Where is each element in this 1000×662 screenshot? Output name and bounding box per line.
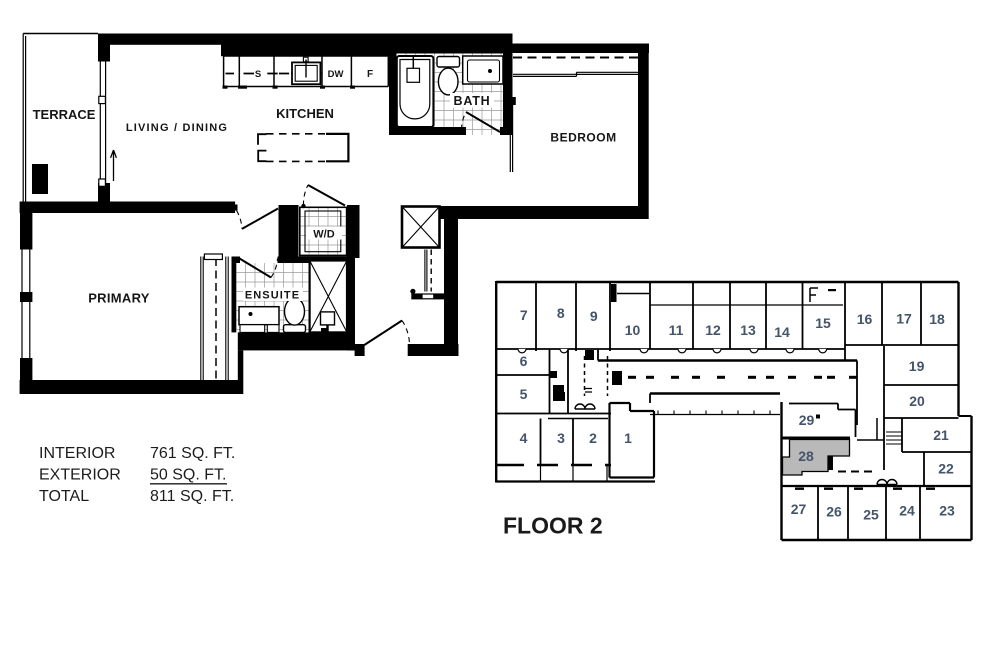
svg-text:2: 2 (589, 430, 597, 446)
svg-text:INTERIOR: INTERIOR (39, 445, 115, 462)
svg-text:TOTAL: TOTAL (39, 488, 89, 505)
svg-text:50 SQ. FT.: 50 SQ. FT. (150, 467, 226, 484)
svg-text:10: 10 (625, 322, 641, 338)
svg-text:23: 23 (939, 502, 955, 518)
svg-text:18: 18 (929, 311, 945, 327)
svg-text:25: 25 (863, 507, 879, 523)
svg-text:ENSUITE: ENSUITE (245, 290, 300, 302)
svg-text:27: 27 (791, 501, 807, 517)
svg-text:5: 5 (520, 386, 528, 402)
svg-text:8: 8 (557, 305, 565, 321)
svg-text:13: 13 (740, 322, 756, 338)
svg-text:W/D: W/D (313, 229, 334, 241)
svg-text:21: 21 (933, 427, 949, 443)
svg-text:TERRACE: TERRACE (33, 107, 96, 122)
svg-text:26: 26 (826, 503, 842, 519)
svg-text:12: 12 (705, 322, 721, 338)
svg-text:4: 4 (520, 430, 528, 446)
svg-text:29: 29 (799, 412, 815, 428)
svg-text:LIVING / DINING: LIVING / DINING (126, 122, 228, 134)
svg-text:3: 3 (557, 430, 565, 446)
svg-text:1: 1 (624, 430, 632, 446)
svg-text:9: 9 (590, 308, 598, 324)
svg-text:19: 19 (909, 358, 925, 374)
svg-text:24: 24 (899, 502, 915, 518)
svg-text:PRIMARY: PRIMARY (88, 291, 150, 306)
svg-text:BEDROOM: BEDROOM (550, 131, 616, 145)
svg-text:20: 20 (909, 393, 925, 409)
svg-text:DW: DW (328, 69, 344, 80)
svg-text:6: 6 (520, 353, 528, 369)
svg-text:761 SQ. FT.: 761 SQ. FT. (150, 445, 235, 462)
svg-text:17: 17 (896, 311, 912, 327)
svg-text:KITCHEN: KITCHEN (276, 106, 334, 121)
svg-text:14: 14 (774, 324, 790, 340)
svg-text:811 SQ. FT.: 811 SQ. FT. (150, 488, 234, 505)
svg-text:11: 11 (669, 322, 684, 338)
svg-text:7: 7 (520, 307, 528, 323)
svg-text:FLOOR 2: FLOOR 2 (503, 513, 603, 539)
svg-text:BATH: BATH (454, 94, 491, 108)
svg-text:F: F (367, 69, 373, 80)
svg-text:EXTERIOR: EXTERIOR (39, 467, 121, 484)
svg-text:15: 15 (815, 315, 831, 331)
svg-text:28: 28 (798, 448, 814, 464)
svg-text:16: 16 (857, 311, 873, 327)
svg-text:22: 22 (938, 461, 954, 477)
svg-text:S: S (255, 69, 261, 80)
